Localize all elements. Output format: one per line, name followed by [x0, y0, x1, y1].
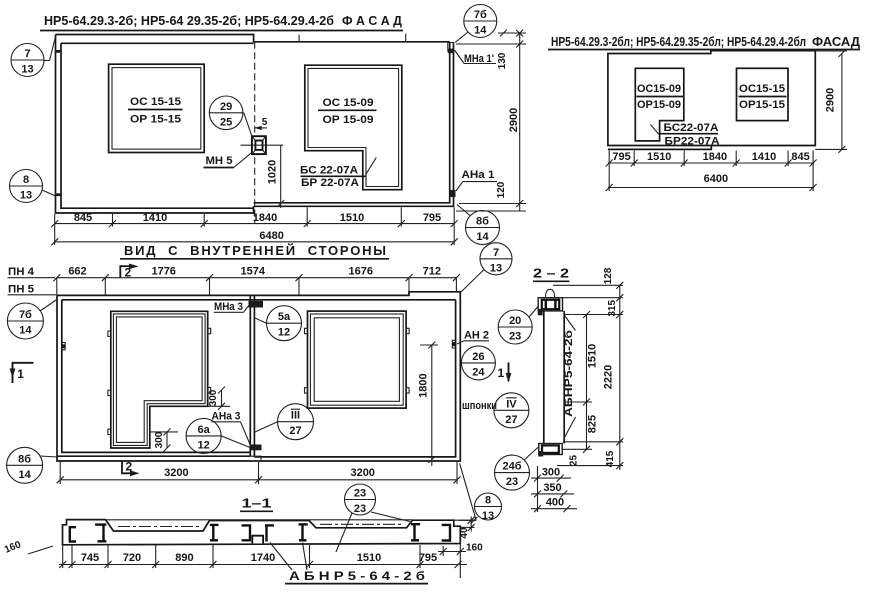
svg-text:НР5-64.29.3-2бл; НР5-64.29.35-: НР5-64.29.3-2бл; НР5-64.29.35-2бл; НР5-6…	[551, 34, 806, 49]
svg-text:АБНР5-64-2б: АБНР5-64-2б	[563, 330, 575, 417]
svg-text:24б: 24б	[502, 461, 521, 473]
svg-text:27: 27	[289, 425, 301, 437]
svg-text:IV: IV	[506, 398, 517, 410]
svg-text:1510: 1510	[647, 151, 671, 163]
svg-text:130: 130	[497, 52, 508, 69]
svg-text:ОС 15-09: ОС 15-09	[323, 97, 374, 109]
svg-text:350: 350	[543, 482, 561, 494]
svg-text:26: 26	[472, 351, 484, 363]
svg-text:120: 120	[496, 181, 507, 198]
svg-text:720: 720	[123, 552, 141, 564]
svg-text:3200: 3200	[164, 467, 188, 479]
svg-text:ФАСАД: ФАСАД	[812, 34, 861, 49]
svg-text:825: 825	[587, 415, 599, 433]
svg-text:29: 29	[220, 101, 232, 113]
svg-text:8: 8	[23, 174, 29, 186]
svg-text:13: 13	[20, 190, 32, 202]
svg-text:12: 12	[197, 439, 209, 451]
svg-text:1800: 1800	[418, 373, 430, 397]
svg-text:13: 13	[482, 510, 494, 522]
svg-text:13: 13	[21, 64, 33, 76]
svg-text:300: 300	[208, 389, 219, 406]
svg-text:795: 795	[419, 552, 437, 564]
svg-text:23: 23	[509, 331, 521, 343]
svg-text:1776: 1776	[151, 266, 175, 278]
svg-text:300: 300	[154, 431, 165, 448]
svg-text:14: 14	[476, 231, 489, 243]
svg-text:АНа 1: АНа 1	[462, 169, 495, 181]
svg-text:1: 1	[17, 367, 24, 381]
svg-text:845: 845	[791, 151, 809, 163]
svg-text:3200: 3200	[350, 467, 374, 479]
svg-text:6400: 6400	[704, 173, 728, 185]
svg-text:1410: 1410	[752, 151, 776, 163]
svg-text:1410: 1410	[143, 212, 167, 224]
svg-text:23: 23	[354, 503, 366, 515]
svg-text:1840: 1840	[703, 151, 727, 163]
svg-text:14: 14	[474, 25, 487, 37]
svg-text:ОС15-15: ОС15-15	[739, 83, 785, 95]
svg-text:1510: 1510	[340, 212, 364, 224]
svg-text:24: 24	[472, 366, 485, 378]
svg-text:6а: 6а	[197, 424, 210, 436]
svg-text:14: 14	[19, 325, 32, 337]
svg-text:2220: 2220	[603, 365, 615, 389]
svg-text:8б: 8б	[476, 216, 489, 228]
svg-text:ОР15-09: ОР15-09	[637, 99, 681, 111]
svg-text:128: 128	[603, 267, 614, 284]
svg-text:АН 2: АН 2	[464, 330, 489, 342]
svg-text:2900: 2900	[508, 108, 520, 132]
svg-text:ОС 15-15: ОС 15-15	[130, 96, 181, 108]
svg-text:795: 795	[423, 212, 441, 224]
svg-text:1020: 1020	[267, 160, 279, 184]
svg-text:1574: 1574	[241, 266, 266, 278]
svg-text:25: 25	[220, 116, 232, 128]
svg-text:712: 712	[423, 266, 441, 278]
svg-text:1740: 1740	[251, 552, 275, 564]
svg-text:МН 5: МН 5	[206, 155, 233, 167]
svg-text:23: 23	[506, 476, 518, 488]
svg-text:8: 8	[485, 495, 491, 507]
svg-text:5: 5	[262, 117, 268, 128]
svg-text:2900: 2900	[825, 88, 837, 112]
svg-text:2 – 2: 2 – 2	[533, 266, 569, 281]
svg-text:III: III	[291, 410, 300, 422]
svg-text:8б: 8б	[18, 453, 31, 465]
svg-text:ОР15-15: ОР15-15	[739, 99, 785, 111]
svg-text:БС22-07А: БС22-07А	[664, 122, 719, 134]
svg-text:БС 22-07А: БС 22-07А	[300, 165, 358, 177]
svg-text:890: 890	[175, 552, 193, 564]
svg-text:40: 40	[459, 527, 470, 539]
svg-text:1510: 1510	[357, 552, 381, 564]
svg-text:1510: 1510	[587, 344, 599, 368]
svg-text:Ф А С А Д: Ф А С А Д	[342, 13, 403, 28]
svg-text:БР 22-07А: БР 22-07А	[301, 177, 359, 189]
svg-text:160: 160	[466, 543, 483, 554]
svg-text:27: 27	[505, 414, 517, 426]
svg-text:ОР 15-15: ОР 15-15	[130, 114, 181, 126]
svg-text:7: 7	[24, 48, 30, 60]
svg-text:13: 13	[490, 262, 502, 274]
svg-text:ВИД С ВНУТРЕННЕЙ СТОРОНЫ: ВИД С ВНУТРЕННЕЙ СТОРОНЫ	[124, 243, 386, 258]
svg-text:662: 662	[68, 266, 86, 278]
svg-text:БР22-07А: БР22-07А	[665, 136, 720, 148]
svg-text:НР5-64.29.3-2б; НР5-64 29.35-2: НР5-64.29.3-2б; НР5-64 29.35-2б; НР5-64.…	[44, 13, 334, 28]
svg-text:1676: 1676	[349, 266, 373, 278]
svg-text:6480: 6480	[259, 230, 283, 242]
svg-text:14: 14	[18, 469, 31, 481]
svg-text:ОР 15-09: ОР 15-09	[323, 114, 374, 126]
svg-text:315: 315	[607, 300, 618, 317]
svg-text:2: 2	[125, 266, 132, 280]
svg-text:1840: 1840	[253, 212, 277, 224]
svg-text:ОС15-09: ОС15-09	[637, 83, 681, 95]
svg-text:400: 400	[546, 497, 564, 509]
svg-text:300: 300	[542, 467, 560, 479]
svg-text:12: 12	[278, 327, 290, 339]
svg-text:845: 845	[74, 212, 92, 224]
svg-text:1–1: 1–1	[242, 496, 272, 511]
svg-text:МНа 3: МНа 3	[214, 301, 243, 313]
svg-text:5а: 5а	[278, 311, 291, 323]
svg-text:23: 23	[354, 488, 366, 500]
svg-text:АНа 3: АНа 3	[212, 411, 241, 423]
svg-text:7б: 7б	[19, 309, 32, 321]
svg-text:20: 20	[509, 315, 521, 327]
svg-text:ПН 5: ПН 5	[8, 284, 34, 296]
svg-text:795: 795	[612, 151, 630, 163]
svg-text:А Б Н Р 5 - 6 4 - 2 б: А Б Н Р 5 - 6 4 - 2 б	[289, 569, 425, 583]
svg-text:1: 1	[498, 366, 505, 380]
svg-text:ПН 4: ПН 4	[8, 266, 35, 278]
svg-text:745: 745	[81, 552, 99, 564]
svg-text:415: 415	[605, 450, 616, 467]
svg-text:7: 7	[493, 247, 499, 259]
svg-text:25: 25	[569, 455, 580, 467]
svg-text:шпонки: шпонки	[462, 400, 497, 412]
svg-text:7б: 7б	[474, 9, 487, 21]
